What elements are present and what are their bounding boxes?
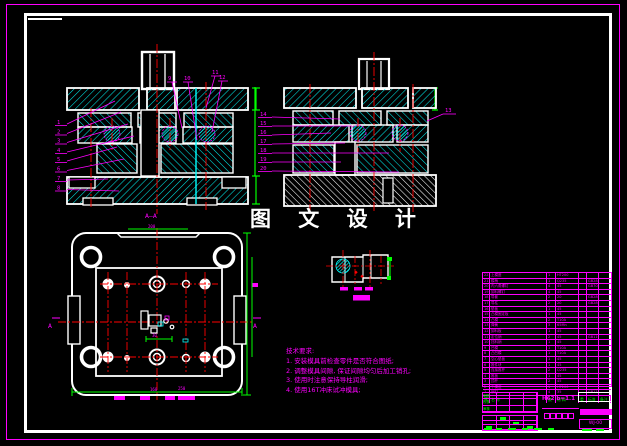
tech-notes: 技术要求: 1. 安装模具前检查零件是否符合图纸;2. 调整模具间隙, 保证间隙… (286, 347, 411, 396)
svg-text:30: 30 (152, 333, 157, 338)
balloon-label: 8 (57, 186, 60, 192)
workpiece-detail-view (326, 250, 394, 301)
punch (335, 142, 355, 175)
dimension-labels: 200 160 250 30 (148, 224, 186, 392)
guide-hole (215, 248, 234, 267)
title-block: 制图 校核 审核 H62 b=1.1 WJ-00 (482, 387, 612, 433)
punch (141, 110, 159, 176)
svg-text:160: 160 (150, 387, 158, 392)
section-arrow-label: A (253, 322, 257, 330)
tolerance-boxes (544, 413, 574, 419)
balloon-label: 16 (260, 130, 267, 136)
guide-hole (82, 348, 101, 367)
ring-holes (150, 277, 190, 365)
balloon-label: 13 (445, 108, 452, 114)
notes-list: 1. 安装模具前检查零件是否符合图纸;2. 调整模具间隙, 保证间隙均匀后加工销… (286, 357, 411, 396)
drawing-number: WJ-00 (579, 419, 612, 429)
balloon-label: 17 (260, 139, 267, 145)
drawing-title-bar (580, 409, 612, 415)
balloon-label: 2 (57, 130, 60, 136)
balloon-label: 6 (57, 167, 60, 173)
note-line: 4. 使用16T冲床试冲模具; (286, 386, 411, 396)
balloon-label: 19 (260, 157, 267, 163)
balloon-label: 5 (57, 157, 60, 163)
section-arrow-label: A (48, 322, 52, 330)
note-line: 2. 调整模具间隙, 保证间隙均匀后加工销孔; (286, 367, 411, 377)
balloon-label: 1 (57, 120, 60, 126)
notes-title: 技术要求: (286, 347, 411, 357)
right-section-view (284, 52, 436, 212)
material-spec: H62 b=1.1 (542, 396, 579, 409)
svg-text:200: 200 (148, 224, 156, 229)
balloon-label: 9 (168, 76, 171, 82)
balloon-label: 10 (184, 76, 191, 82)
balloon-label: 18 (260, 148, 267, 154)
balloon-label: 14 (260, 112, 267, 118)
balloon-label: 3 (57, 139, 60, 145)
section-label: A—A (145, 212, 157, 220)
guide-hole (82, 248, 101, 267)
plan-view: 200 160 250 30 A A (48, 224, 261, 400)
dim-text-marks (114, 396, 195, 400)
balloon-label: 12 (219, 75, 226, 81)
balloon-label: 7 (57, 176, 60, 182)
cad-drawing-page: A—A (0, 0, 627, 446)
signature-grid-upper: 制图 校核 审核 (482, 392, 538, 413)
watermark-title: 图 文 设 计 (250, 203, 426, 233)
dim-text-marks (340, 287, 373, 301)
bom-rows: 22上模座1HT20021模柄1Q235GB286220内六角螺钉445GB70… (483, 273, 611, 395)
note-line: 3. 使用时注意保持导柱润滑; (286, 376, 411, 386)
bom-table: 22上模座1HT20021模柄1Q235GB286220内六角螺钉445GB70… (482, 272, 612, 387)
balloon-label: 20 (260, 166, 267, 172)
svg-text:250: 250 (178, 386, 186, 391)
sig-label: 审核 (483, 406, 497, 412)
balloon-label: 11 (212, 70, 219, 76)
balloon-label: 15 (260, 121, 267, 127)
note-line: 1. 安装模具前检查零件是否符合图纸; (286, 357, 411, 367)
title-box (578, 392, 612, 402)
